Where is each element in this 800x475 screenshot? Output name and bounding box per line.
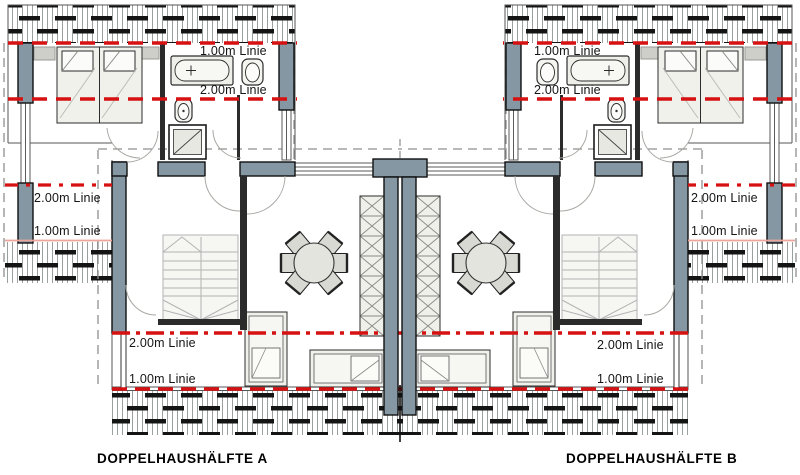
floor-plan-page: 1.00m Linie 2.00m Linie 1.00m Linie 2.00… xyxy=(0,0,800,475)
height-line-label-top-b-1m: 1.00m Linie xyxy=(534,45,601,58)
height-line-label-top-b-2m: 2.00m Linie xyxy=(534,84,601,97)
height-line-label-top-a-2m: 2.00m Linie xyxy=(200,84,267,97)
single-bed-horizontal xyxy=(310,350,386,387)
height-line-label-right-1m: 1.00m Linie xyxy=(691,225,758,238)
height-line-label-left-2m: 2.00m Linie xyxy=(34,192,101,205)
house-b-plan xyxy=(400,5,796,435)
toilet xyxy=(175,99,192,122)
single-bed-vertical xyxy=(245,312,287,386)
staircase xyxy=(163,235,238,322)
dining-table xyxy=(294,243,334,283)
washbasin xyxy=(242,59,263,85)
height-line-label-bottom-a-1m: 1.00m Linie xyxy=(129,373,196,386)
bathtub xyxy=(171,56,233,85)
house-a-title: DOPPELHAUSHÄLFTE A xyxy=(97,451,268,466)
house-b-title: DOPPELHAUSHÄLFTE B xyxy=(566,451,737,466)
house-a-plan xyxy=(4,5,400,435)
height-line-label-left-1m: 1.00m Linie xyxy=(34,225,101,238)
height-line-label-bottom-a-2m: 2.00m Linie xyxy=(129,337,196,350)
shower xyxy=(169,125,206,159)
height-line-label-top-a-1m: 1.00m Linie xyxy=(200,45,267,58)
height-line-label-bottom-b-1m: 1.00m Linie xyxy=(597,373,664,386)
height-line-label-bottom-b-2m: 2.00m Linie xyxy=(597,339,664,352)
double-bed xyxy=(34,47,159,123)
floor-plan-canvas xyxy=(0,0,800,475)
dining-set xyxy=(281,232,347,295)
height-line-label-right-2m: 2.00m Linie xyxy=(691,192,758,205)
wardrobe-strip xyxy=(360,196,384,336)
